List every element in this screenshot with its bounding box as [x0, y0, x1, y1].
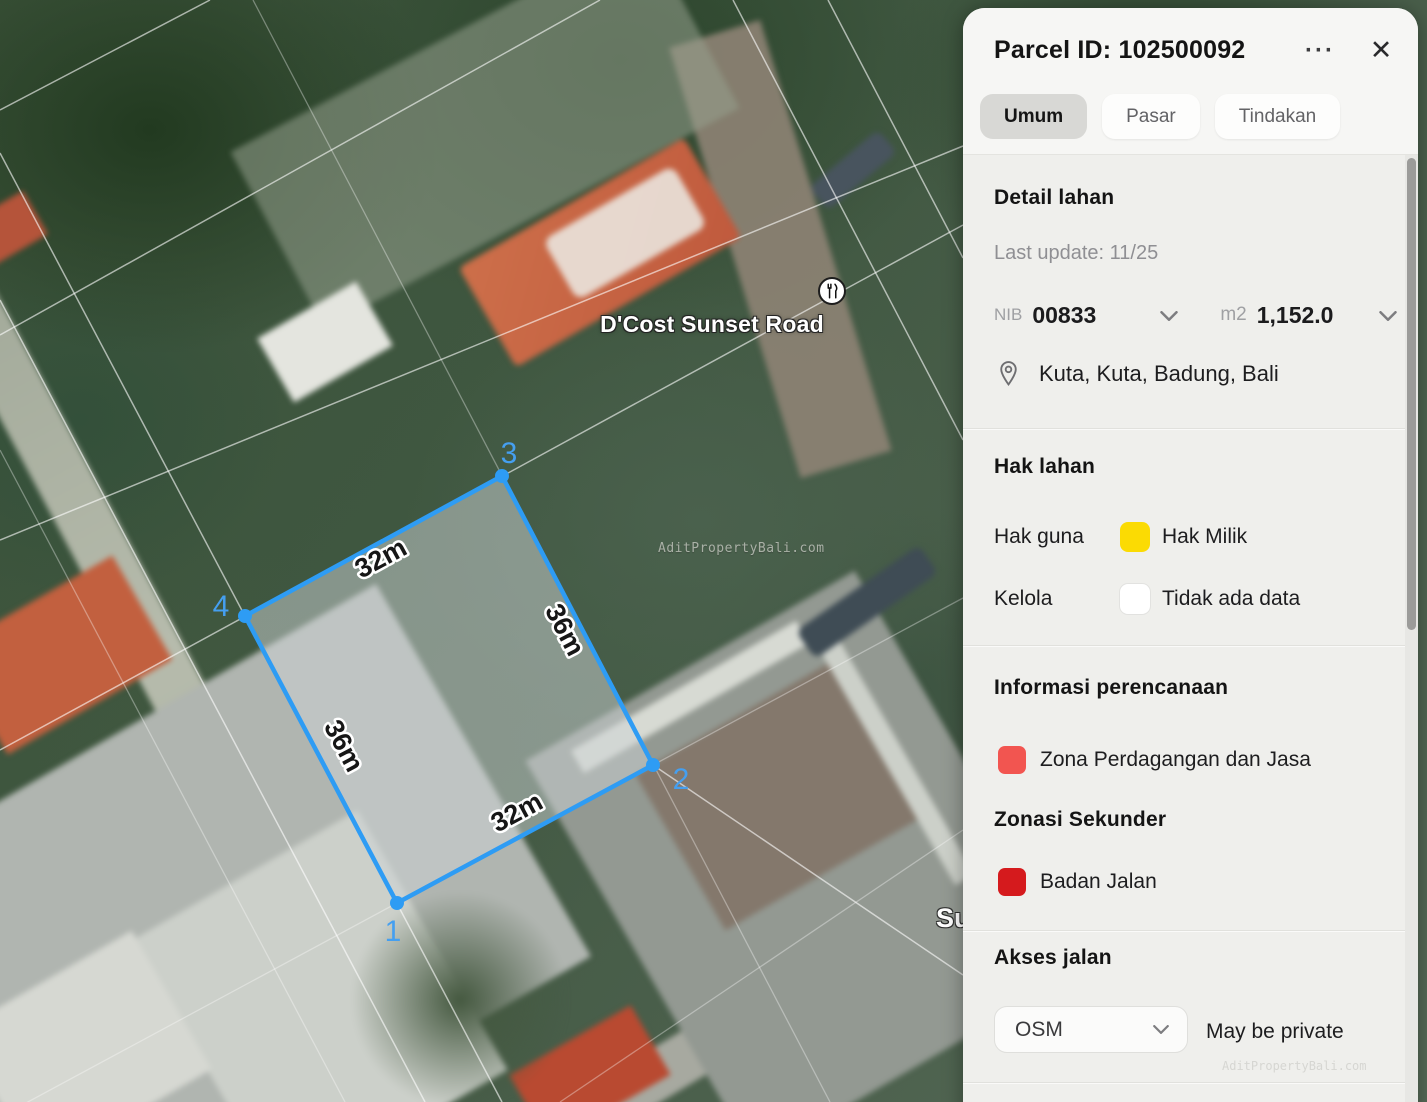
- nib-value: 00833: [1032, 302, 1096, 329]
- subheading-zonasi-sekunder: Zonasi Sekunder: [994, 808, 1166, 832]
- section-heading-detail-lahan: Detail lahan: [994, 186, 1114, 210]
- area-label: m2: [1220, 304, 1246, 326]
- kelola-color-swatch: [1120, 584, 1150, 614]
- kelola-row: Kelola Tidak ada data: [994, 584, 1300, 614]
- section-divider: [963, 645, 1418, 646]
- watermark: AditPropertyBali.com: [658, 541, 825, 556]
- hak-guna-value: Hak Milik: [1162, 525, 1247, 549]
- hak-guna-label: Hak guna: [994, 525, 1120, 549]
- nib-dropdown-chevron-icon[interactable]: [1160, 308, 1178, 326]
- tab-pasar[interactable]: Pasar: [1102, 94, 1200, 139]
- dropdown-value: OSM: [1015, 1018, 1063, 1042]
- area-value: 1,152.0: [1257, 302, 1334, 329]
- zona-label: Zona Perdagangan dan Jasa: [1040, 748, 1311, 772]
- badan-jalan-row: Badan Jalan: [998, 868, 1157, 896]
- zona-row: Zona Perdagangan dan Jasa: [998, 746, 1311, 774]
- zona-color-swatch: [998, 746, 1026, 774]
- last-update-text: Last update: 11/25: [994, 242, 1158, 265]
- panel-title: Parcel ID: 102500092: [994, 36, 1245, 65]
- section-heading-perencanaan: Informasi perencanaan: [994, 676, 1228, 700]
- section-divider: [963, 428, 1418, 429]
- nib-label: NIB: [994, 305, 1022, 325]
- location-row: Kuta, Kuta, Badung, Bali: [996, 360, 1279, 387]
- hak-guna-color-swatch: [1120, 522, 1150, 552]
- kelola-value: Tidak ada data: [1162, 587, 1300, 611]
- tab-tindakan[interactable]: Tindakan: [1215, 94, 1340, 139]
- vertex-label-2: 2: [673, 763, 690, 796]
- panel-scrollbar-track[interactable]: [1405, 155, 1418, 1102]
- parcel-vertex-2[interactable]: [646, 758, 660, 772]
- vertex-label-1: 1: [385, 915, 402, 948]
- location-text: Kuta, Kuta, Badung, Bali: [1039, 361, 1279, 387]
- restaurant-icon: [823, 282, 841, 300]
- area-dropdown-chevron-icon[interactable]: [1379, 308, 1397, 326]
- panel-header: Parcel ID: 102500092 ··· ✕ Umum Pasar Ti…: [963, 8, 1418, 155]
- app-window: 1 2 3 4 32m 36m 36m 32m D'Cost Sunset Ro…: [0, 0, 1427, 1102]
- more-options-button[interactable]: ···: [1299, 34, 1341, 68]
- section-divider: [963, 930, 1418, 931]
- vertex-label-4: 4: [213, 590, 230, 623]
- panel-scrollbar-thumb[interactable]: [1407, 158, 1416, 630]
- section-heading-akses-jalan: Akses jalan: [994, 946, 1112, 970]
- close-button[interactable]: ✕: [1361, 30, 1401, 70]
- hak-guna-row: Hak guna Hak Milik: [994, 522, 1247, 552]
- parcel-polygon[interactable]: [245, 476, 653, 903]
- parcel-vertex-4[interactable]: [238, 609, 252, 623]
- badan-jalan-color-swatch: [998, 868, 1026, 896]
- dropdown-chevron-icon: [1153, 1025, 1169, 1034]
- badan-jalan-label: Badan Jalan: [1040, 870, 1157, 894]
- parcel-vertex-1[interactable]: [390, 896, 404, 910]
- parcel-detail-panel: Parcel ID: 102500092 ··· ✕ Umum Pasar Ti…: [963, 8, 1418, 1102]
- section-heading-hak-lahan: Hak lahan: [994, 455, 1095, 479]
- tab-umum[interactable]: Umum: [980, 94, 1087, 139]
- kelola-label: Kelola: [994, 587, 1120, 611]
- watermark: AditPropertyBali.com: [1222, 1059, 1367, 1073]
- road-access-source-dropdown[interactable]: OSM: [994, 1006, 1188, 1053]
- section-divider: [963, 1082, 1418, 1083]
- tab-bar: Umum Pasar Tindakan: [980, 94, 1340, 139]
- access-note: May be private: [1206, 1020, 1344, 1044]
- vertex-label-3: 3: [501, 437, 518, 470]
- parcel-fields-row: NIB 00833 m2 1,152.0: [994, 289, 1389, 341]
- parcel-vertex-3[interactable]: [495, 469, 509, 483]
- poi-label: D'Cost Sunset Road: [592, 311, 832, 338]
- restaurant-poi-marker[interactable]: [818, 277, 846, 305]
- location-pin-icon: [996, 360, 1021, 387]
